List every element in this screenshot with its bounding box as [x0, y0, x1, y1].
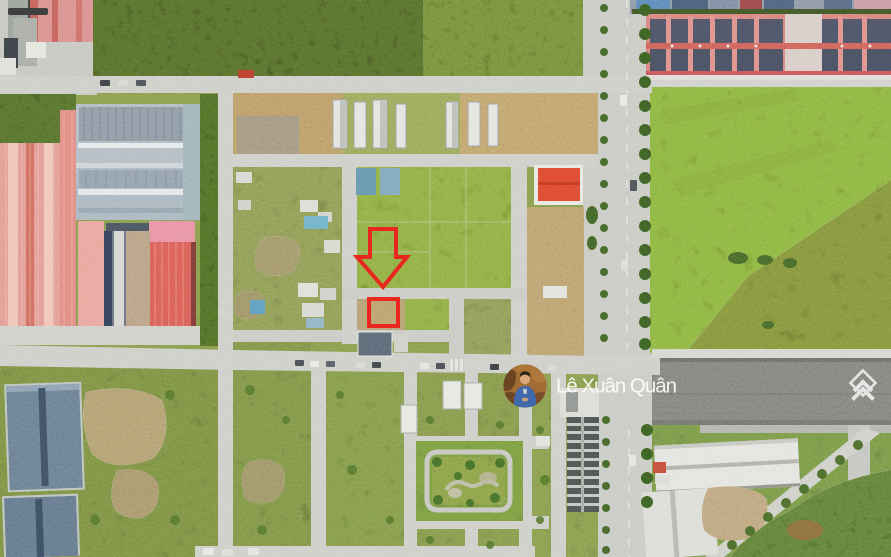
- svg-text:Lê Xuân Quân: Lê Xuân Quân: [556, 375, 677, 398]
